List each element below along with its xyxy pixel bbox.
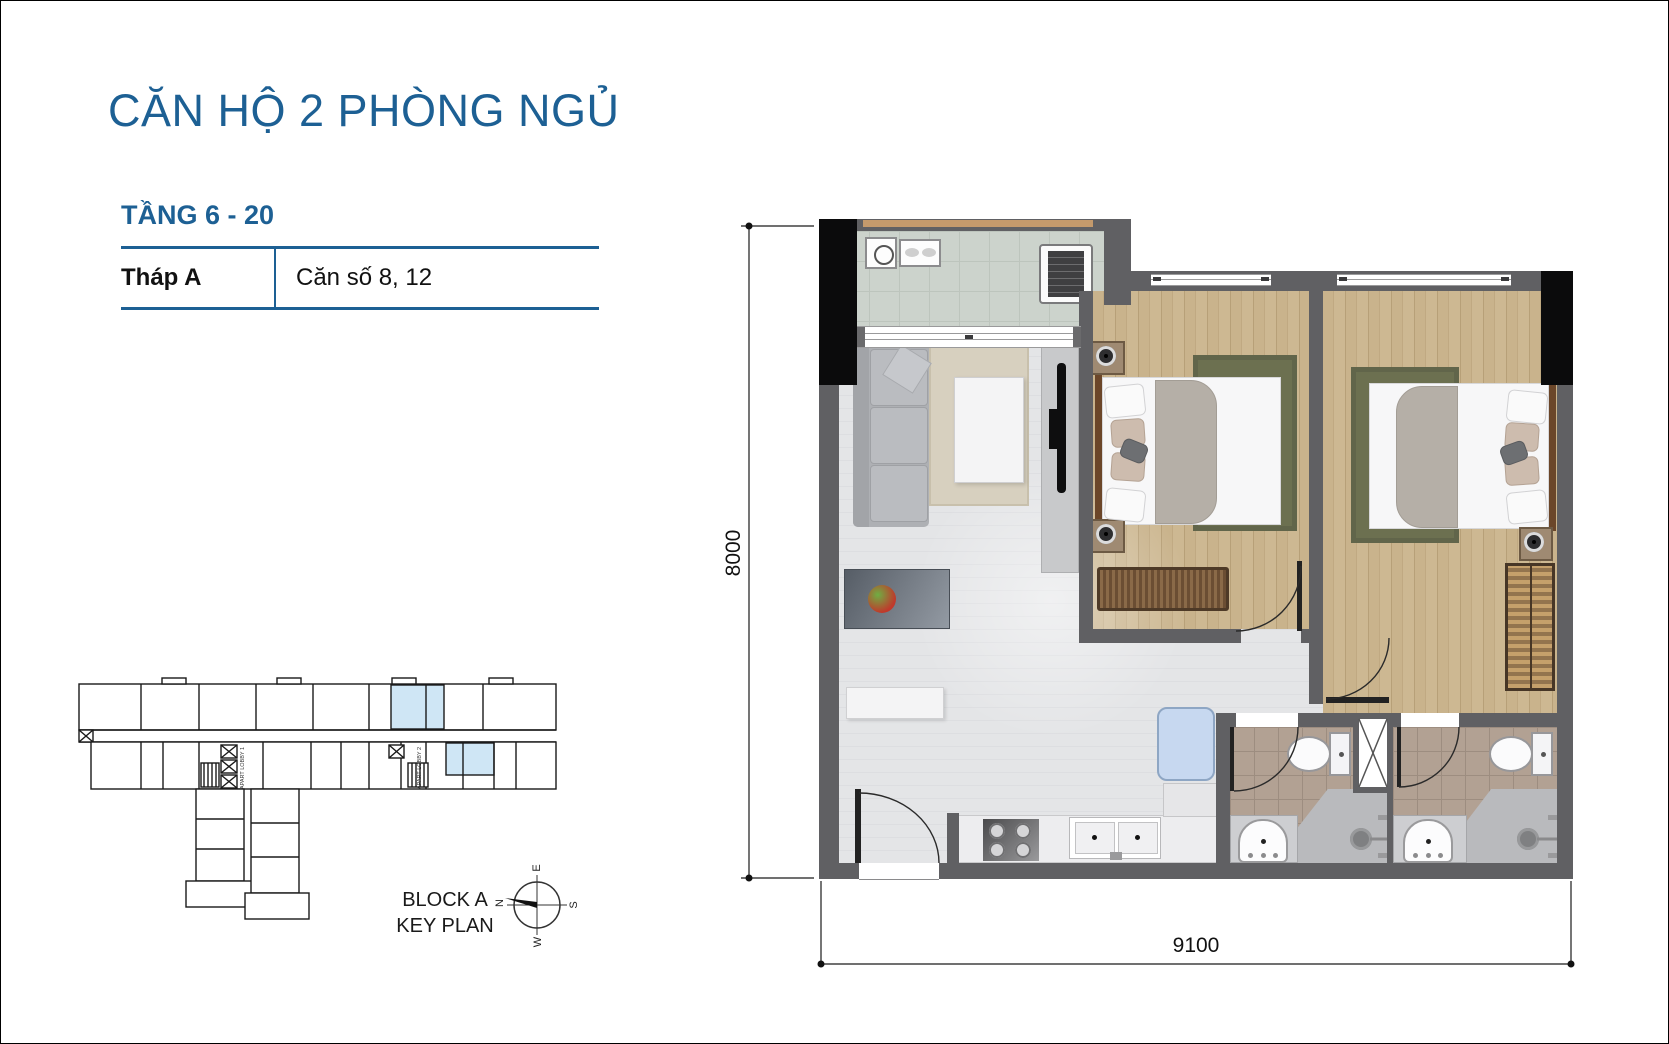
dimension-end-dot: [746, 223, 753, 230]
bedroom1-headboard: [1095, 375, 1102, 527]
bed-blanket: [1396, 386, 1458, 528]
shower-head-icon: [1517, 828, 1539, 850]
wardrobe: [1505, 563, 1555, 691]
bathroom2-door-leaf: [1397, 727, 1401, 787]
balcony-planter: [863, 220, 1093, 227]
nightstand: [1091, 519, 1125, 553]
key-plan: APART LOBBY 1 APART LOBBY 2 BLOCK A KEY …: [59, 637, 599, 957]
floor-plan-page: CĂN HỘ 2 PHÒNG NGỦ TẦNG 6 - 20 Tháp A Că…: [0, 0, 1669, 1044]
tower-cell: Tháp A: [121, 249, 276, 307]
bed-pillow: [1103, 383, 1146, 419]
console-cabinet: [846, 687, 944, 719]
kitchen-bathroom-wall: [1216, 713, 1230, 863]
dimension-end-dot: [746, 875, 753, 882]
shower-head-icon: [1350, 828, 1372, 850]
unit-info-table: Tháp A Căn số 8, 12: [121, 246, 599, 310]
compass-south: S: [568, 901, 580, 908]
toilet-icon: [1287, 736, 1331, 772]
keyplan-top-row: [79, 684, 556, 730]
stove-icon: [983, 819, 1039, 861]
table-lamp-icon: [1096, 524, 1116, 544]
compass-icon: E N S W: [494, 864, 580, 947]
balcony-east-wall: [1104, 219, 1131, 305]
dining-table: [844, 569, 950, 629]
highlighted-unit-8: [391, 685, 444, 729]
bedroom-dividing-wall: [1309, 284, 1323, 704]
toilet-tank: [1531, 732, 1553, 776]
living-bedroom1-wall: [1079, 291, 1093, 641]
nightstand: [1519, 527, 1553, 561]
kitchen-wall-stub: [947, 813, 959, 863]
fridge-cabinet: [1163, 783, 1217, 817]
coffee-table: [954, 377, 1024, 483]
keyplan-caption-line1: BLOCK A: [402, 889, 488, 911]
highlighted-unit-12: [446, 743, 494, 775]
bedroom1-door-leaf: [1297, 561, 1302, 631]
basin-sink-icon: [1403, 819, 1453, 863]
bed-blanket: [1155, 380, 1217, 524]
structural-column: [1541, 271, 1573, 385]
bed-pillow: [1505, 389, 1548, 425]
bed-pillow: [1103, 487, 1146, 523]
height-dimension-label: 8000: [722, 513, 746, 593]
shaft-x-icon: [1353, 713, 1393, 793]
bathroom1-door-opening: [1236, 713, 1298, 727]
nightstand: [1091, 341, 1125, 375]
keyplan-caption-line2: KEY PLAN: [396, 915, 493, 937]
bedroom1-south-wall: [1079, 629, 1241, 643]
bedroom2-window: [1337, 274, 1511, 286]
entry-door-leaf: [855, 789, 861, 863]
kitchen-sink-icon: [1069, 817, 1161, 859]
bedroom2-headboard: [1549, 381, 1556, 531]
drying-rack-icon: [899, 239, 941, 267]
table-lamp-icon: [1524, 532, 1544, 552]
lobby2-label: APART LOBBY 2: [417, 747, 423, 789]
floor-range-label: TẦNG 6 - 20: [121, 200, 274, 231]
toilet-icon: [1489, 736, 1533, 772]
tv-mount: [1049, 409, 1058, 449]
page-title: CĂN HỘ 2 PHÒNG NGỦ: [108, 85, 620, 137]
unit-numbers-cell: Căn số 8, 12: [276, 249, 432, 307]
sofa: [853, 343, 929, 527]
bathroom1-door-leaf: [1230, 727, 1234, 791]
toilet-tank: [1329, 732, 1351, 776]
dimension-end-dot: [818, 961, 825, 968]
width-dimension-label: 9100: [1146, 934, 1246, 958]
table-lamp-icon: [1096, 346, 1116, 366]
bathroom2-door-opening: [1401, 713, 1459, 727]
bedroom2-door-leaf: [1326, 697, 1389, 703]
structural-column: [819, 219, 857, 385]
bed-pillow: [1505, 489, 1548, 525]
washing-machine-icon: [865, 237, 897, 269]
fridge: [1157, 707, 1215, 781]
keyplan-wings: [186, 789, 309, 919]
compass-west: W: [532, 936, 544, 947]
west-wall: [819, 385, 839, 863]
bed-bench: [1097, 567, 1229, 611]
balcony-sliding-door: [857, 326, 1081, 348]
fruit-bowl-icon: [868, 585, 896, 613]
compass-north: N: [494, 899, 506, 907]
lobby1-label: APART LOBBY 1: [240, 747, 246, 789]
tv-icon: [1057, 363, 1066, 493]
bedroom1-window: [1151, 274, 1271, 286]
compass-east: E: [531, 864, 543, 871]
height-dimension-line: [741, 226, 814, 878]
basin-sink-icon: [1238, 819, 1288, 863]
dimension-end-dot: [1568, 961, 1575, 968]
entry-opening: [859, 863, 939, 880]
